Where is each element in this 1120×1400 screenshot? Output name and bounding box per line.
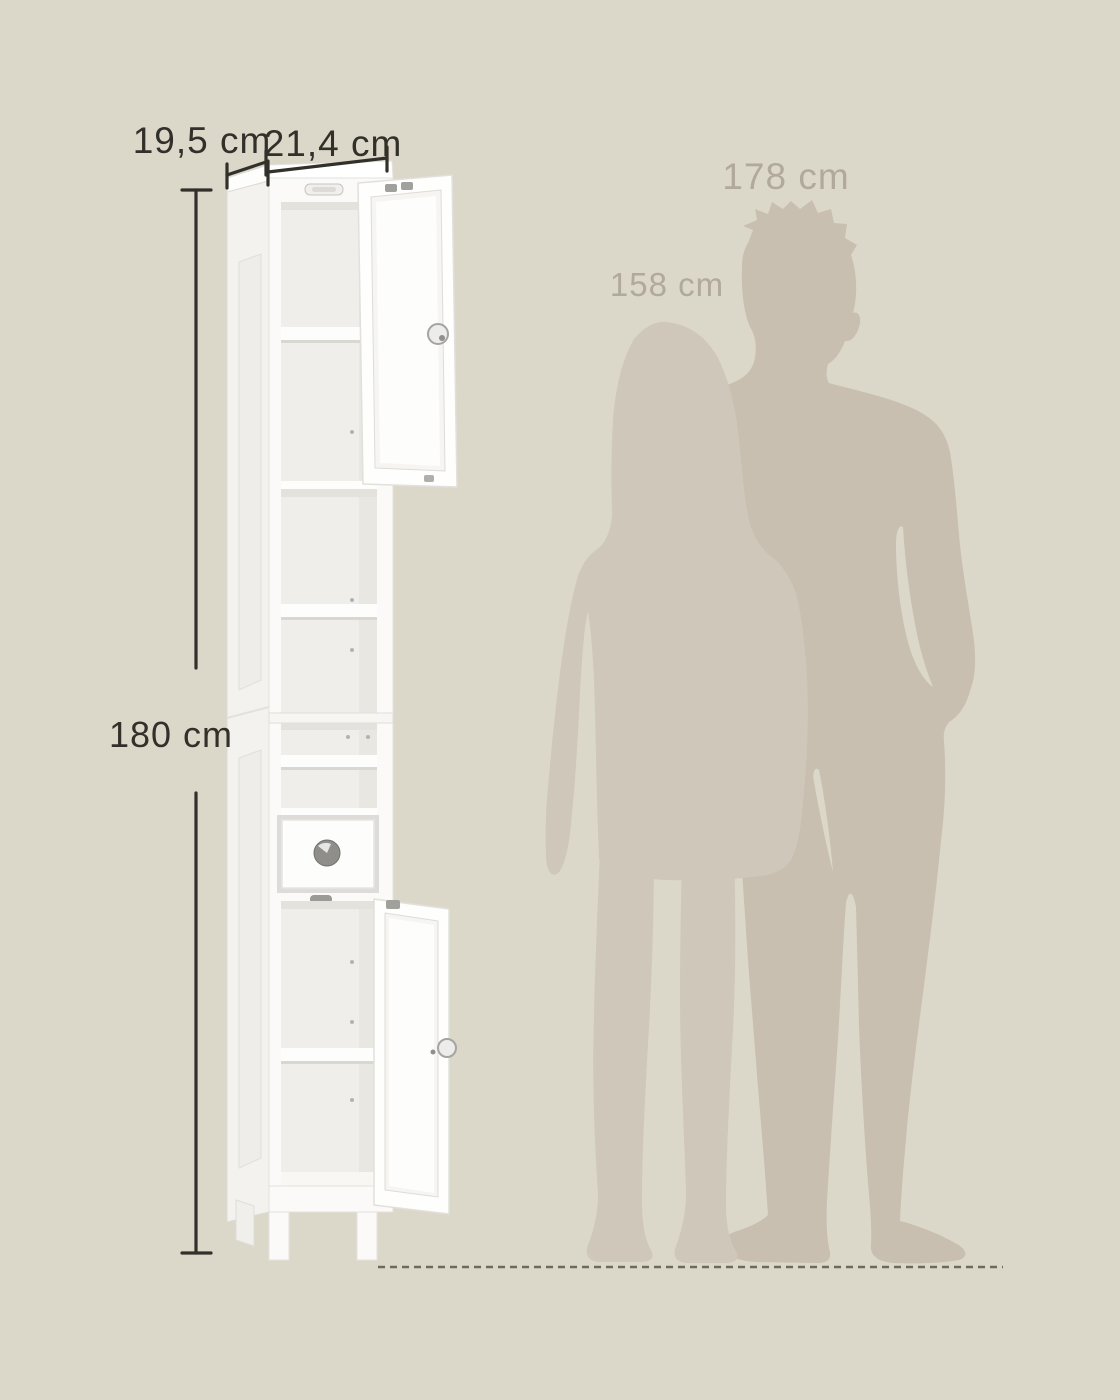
cubby-shelf-shadow: [281, 767, 377, 770]
middle-shelf-shadow: [281, 617, 377, 620]
cabinet-side-recessed-panel-lower: [239, 750, 261, 1168]
middle-compartment-top-shadow: [281, 489, 377, 497]
diagram-canvas: 19,5 cm 21,4 cm 180 cm 158 cm 178 cm: [0, 0, 1120, 1400]
upper-door-knob: [428, 324, 448, 344]
cubby-top-shadow: [281, 723, 377, 730]
cabinet-lower-door: [374, 899, 456, 1214]
cabinet-lower-compartment: [281, 901, 377, 1186]
cabinet-side-recessed-panel-upper: [239, 254, 261, 690]
cabinet-drawer: [277, 815, 379, 904]
upper-door-hinge-top-2: [401, 182, 413, 190]
lower-shelf-shadow: [281, 1061, 377, 1064]
upper-door-knob-dot: [439, 335, 445, 341]
lower-compartment-floor: [281, 1172, 377, 1186]
upper-door-hinge-top: [385, 184, 397, 192]
cabinet-middle-open-shelves: [281, 481, 377, 713]
lower-door-knob: [438, 1039, 456, 1057]
cabinet-unit-junction: [269, 713, 393, 723]
lower-door-hinge: [386, 900, 400, 909]
door-catch-upper-slot: [312, 187, 336, 192]
product-dimension-diagram: 19,5 cm 21,4 cm 180 cm 158 cm 178 cm: [0, 0, 1120, 1400]
width-dimension-label: 21,4 cm: [264, 123, 403, 164]
lower-shelf: [281, 1048, 377, 1061]
upper-door-hinge-bottom: [424, 475, 434, 482]
cabinet-leg-back-left: [236, 1200, 254, 1246]
middle-compartment-right-wall: [359, 489, 377, 713]
cabinet-upper-door: [358, 175, 457, 487]
middle-shelf: [281, 604, 377, 617]
cabinet-lower-cubbies: [281, 723, 377, 817]
cabinet-leg-front-right: [357, 1212, 377, 1260]
female-height-label: 158 cm: [610, 266, 724, 303]
cubby-shelf: [281, 755, 377, 767]
depth-dimension-label: 19,5 cm: [133, 120, 272, 161]
lower-door-inner-panel: [389, 918, 434, 1193]
cabinet-leg-front-left: [269, 1212, 289, 1260]
male-height-label: 178 cm: [722, 156, 849, 197]
lower-compartment-top-shadow: [281, 901, 377, 909]
lower-door-knob-dot: [431, 1050, 436, 1055]
height-dimension-label: 180 cm: [109, 714, 233, 755]
